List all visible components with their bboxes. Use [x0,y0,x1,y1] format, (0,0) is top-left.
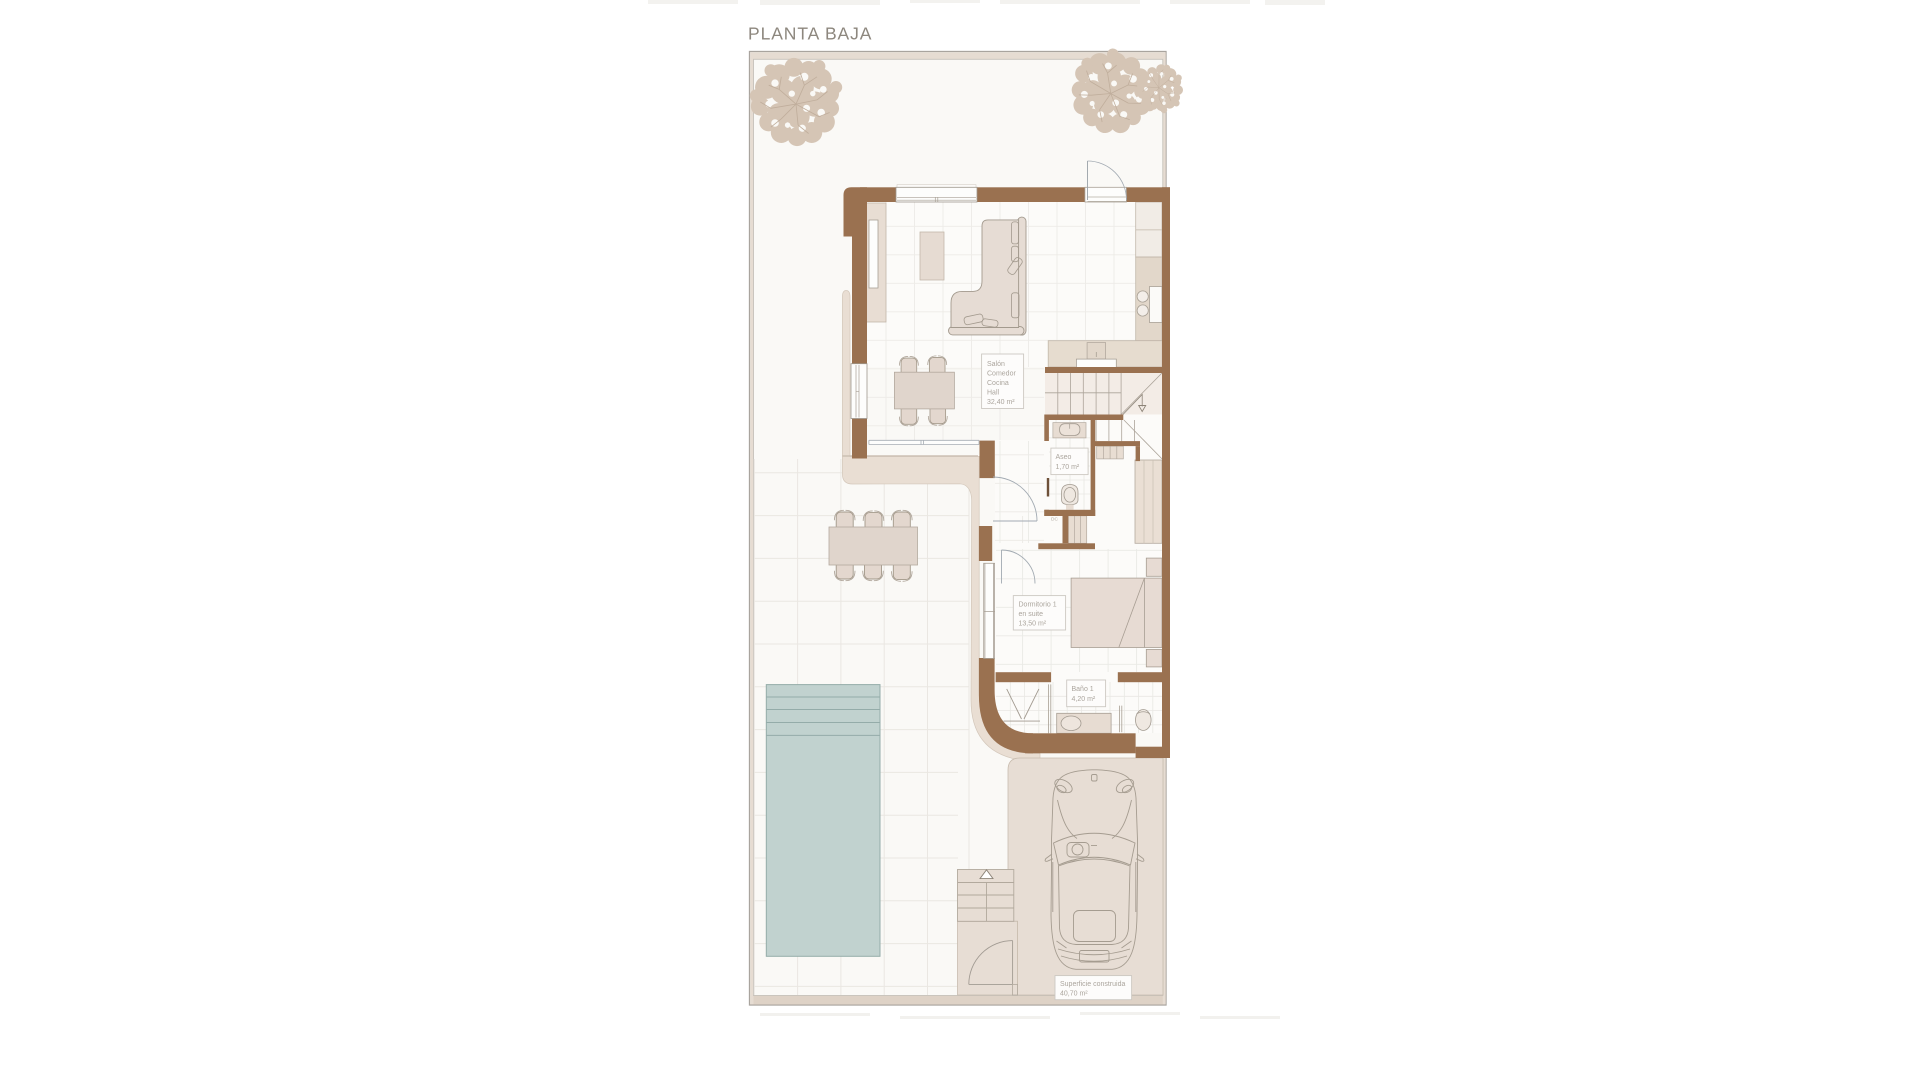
svg-text:40,70 m²: 40,70 m² [1060,991,1088,998]
svg-text:DC: DC [1051,517,1058,523]
svg-text:4,20 m²: 4,20 m² [1072,696,1096,703]
svg-text:Aseo: Aseo [1056,454,1072,461]
svg-text:1,70 m²: 1,70 m² [1056,464,1080,471]
svg-text:32,40 m²: 32,40 m² [987,399,1015,406]
svg-text:Superficie construida: Superficie construida [1060,981,1125,988]
svg-text:PLANTA BAJA: PLANTA BAJA [748,24,872,44]
svg-text:Salón: Salón [987,361,1005,368]
svg-text:en suite: en suite [1019,611,1044,618]
svg-text:Hall: Hall [987,390,1000,397]
svg-text:Dormitorio 1: Dormitorio 1 [1019,602,1057,609]
svg-text:Cocina: Cocina [987,380,1009,387]
svg-text:Comedor: Comedor [987,371,1016,378]
svg-text:Baño 1: Baño 1 [1072,686,1094,693]
svg-text:13,50 m²: 13,50 m² [1019,621,1047,628]
